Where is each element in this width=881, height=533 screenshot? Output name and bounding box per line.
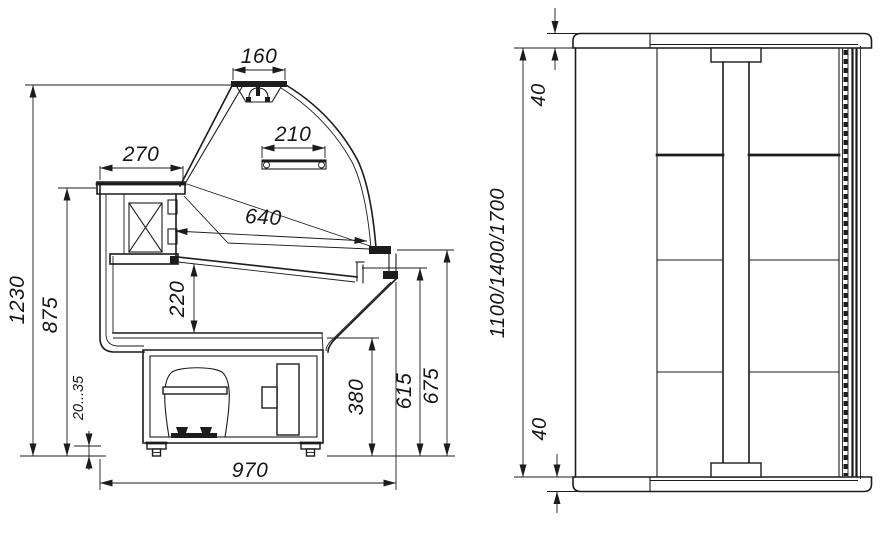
end-glass-seal: [843, 46, 861, 479]
cabinet-body: [576, 48, 840, 477]
dim-label-canopy-width: 160: [241, 45, 278, 68]
display-deck: [110, 254, 364, 283]
lamp-icon: [246, 87, 270, 102]
dimension-top-ledge-depth: 270: [100, 143, 183, 180]
dimension-length-variants: 1100/1400/1700: [487, 48, 578, 477]
machine-compartment: [143, 350, 323, 443]
dimension-canopy-width: 160: [233, 45, 285, 80]
dimension-overall-height: 1230: [6, 85, 231, 456]
front-panel: [326, 254, 398, 352]
evaporator-duct-icon: [129, 203, 162, 252]
condenser-box-tab: [262, 387, 277, 408]
dim-label-top-profile: 40: [528, 83, 550, 106]
adjustable-foot-right: [301, 443, 320, 456]
adjustable-foot-left: [147, 443, 166, 456]
center-post: [711, 48, 761, 477]
drawing-sheet: 160 210 270 640 1230 875: [0, 0, 881, 533]
dim-label-display-opening: 640: [244, 205, 282, 230]
canopy-top-bar: [231, 81, 287, 87]
canopy: [180, 81, 287, 186]
dim-label-well-depth: 220: [166, 281, 189, 319]
dim-label-front-glass-height: 675: [420, 368, 443, 405]
condenser-box: [277, 364, 299, 435]
dim-label-top-ledge-depth: 270: [122, 143, 160, 166]
dim-label-bottom-profile: 40: [529, 417, 551, 440]
dimension-base-height: 380: [327, 338, 379, 456]
dim-label-shelf-width: 210: [274, 123, 312, 146]
back-wall: [100, 186, 144, 352]
glass-bottom-rail: [369, 246, 391, 254]
glass-shelf: [262, 160, 326, 169]
front-elevation-view: 40 40 1100/1400/1700: [487, 8, 872, 513]
shelf-lines: [657, 155, 839, 372]
dim-label-base-height: 380: [345, 379, 368, 416]
dimension-shelf-width: 210: [262, 123, 325, 158]
back-column: [124, 194, 177, 256]
bumper-rail: [383, 271, 398, 279]
bottom-profile: [573, 477, 872, 492]
dim-label-overall-height: 1230: [6, 276, 29, 325]
technical-drawing-canvas: 160 210 270 640 1230 875: [0, 0, 881, 533]
side-section-view: 160 210 270 640 1230 875: [6, 45, 455, 490]
compressor-icon: [163, 368, 229, 438]
well-floor: [113, 333, 323, 350]
dim-label-leg-adjustment: 20...35: [71, 375, 87, 421]
dim-label-deck-height: 615: [393, 373, 416, 410]
dimension-worktop-height: 875: [39, 188, 97, 456]
dimension-bottom-profile: 40: [529, 417, 580, 513]
top-profile: [573, 34, 872, 49]
dimension-top-profile: 40: [528, 8, 578, 107]
worktop-ledge: [97, 182, 185, 194]
dimension-well-depth: 220: [166, 264, 194, 333]
dim-label-overall-depth: 970: [232, 459, 269, 482]
dim-label-length-variants: 1100/1400/1700: [487, 188, 509, 338]
dim-label-worktop-height: 875: [39, 297, 62, 334]
